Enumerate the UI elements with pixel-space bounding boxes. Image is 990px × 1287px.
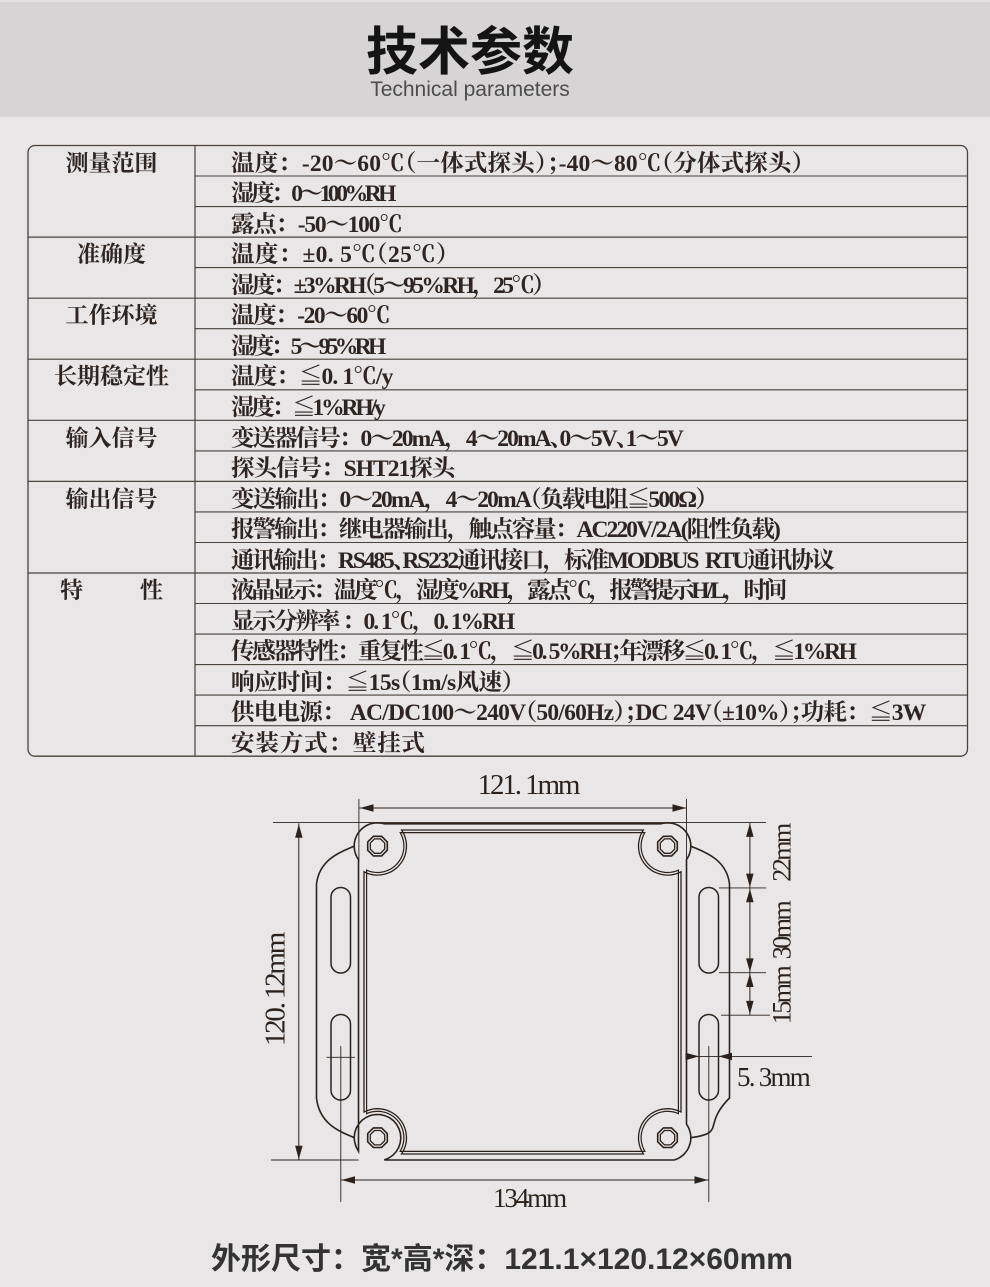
svg-text:121. 1mm: 121. 1mm <box>478 769 581 801</box>
svg-text:134mm: 134mm <box>493 1183 567 1213</box>
svg-text:120. 12mm: 120. 12mm <box>260 931 292 1046</box>
svg-text:5. 3mm: 5. 3mm <box>737 1062 811 1092</box>
svg-text:15mm: 15mm <box>768 966 797 1025</box>
svg-text:30mm: 30mm <box>768 901 797 960</box>
svg-text:22mm: 22mm <box>768 823 797 882</box>
